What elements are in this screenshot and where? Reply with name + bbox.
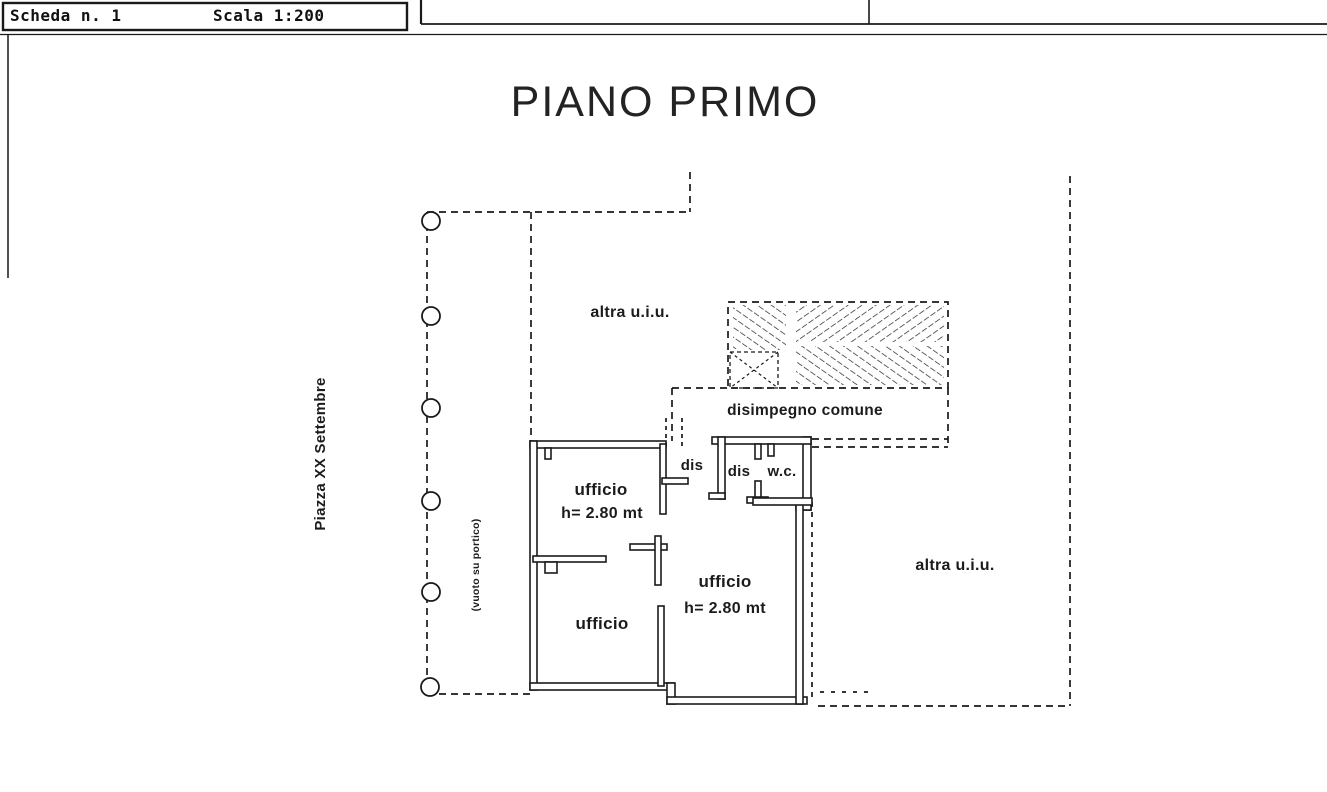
portico-void-label: (vuoto su portico) — [471, 490, 485, 640]
stairs-hatching — [730, 305, 944, 388]
room-label-dis-corridor: dis — [672, 458, 712, 475]
room-label-altra-uiu-top: altra u.i.u. — [560, 304, 700, 322]
street-label: Piazza XX Settembre — [313, 354, 331, 554]
room-label-altra-uiu-right: altra u.i.u. — [885, 557, 1025, 575]
portico-columns — [421, 212, 440, 696]
scale-label: Scala 1:200 — [213, 6, 324, 25]
page-title: PIANO PRIMO — [455, 78, 875, 127]
scanned-floor-plan-page: Scheda n. 1 Scala 1:200 PIANO PRIMO Piaz… — [0, 0, 1327, 792]
room-label-ufficio-1: ufficio — [540, 481, 662, 500]
room-label-dis-2: dis — [719, 464, 759, 481]
room-label-ufficio-3: ufficio — [541, 615, 663, 634]
room-height-ufficio-2: h= 2.80 mt — [663, 600, 787, 618]
header-frame — [0, 0, 1327, 278]
room-label-disimpegno-comune: disimpegno comune — [705, 402, 905, 419]
room-label-ufficio-2: ufficio — [664, 573, 786, 592]
scheda-number: Scheda n. 1 — [10, 6, 121, 25]
room-label-wc: w.c. — [757, 464, 807, 481]
room-height-ufficio-1: h= 2.80 mt — [540, 505, 664, 523]
